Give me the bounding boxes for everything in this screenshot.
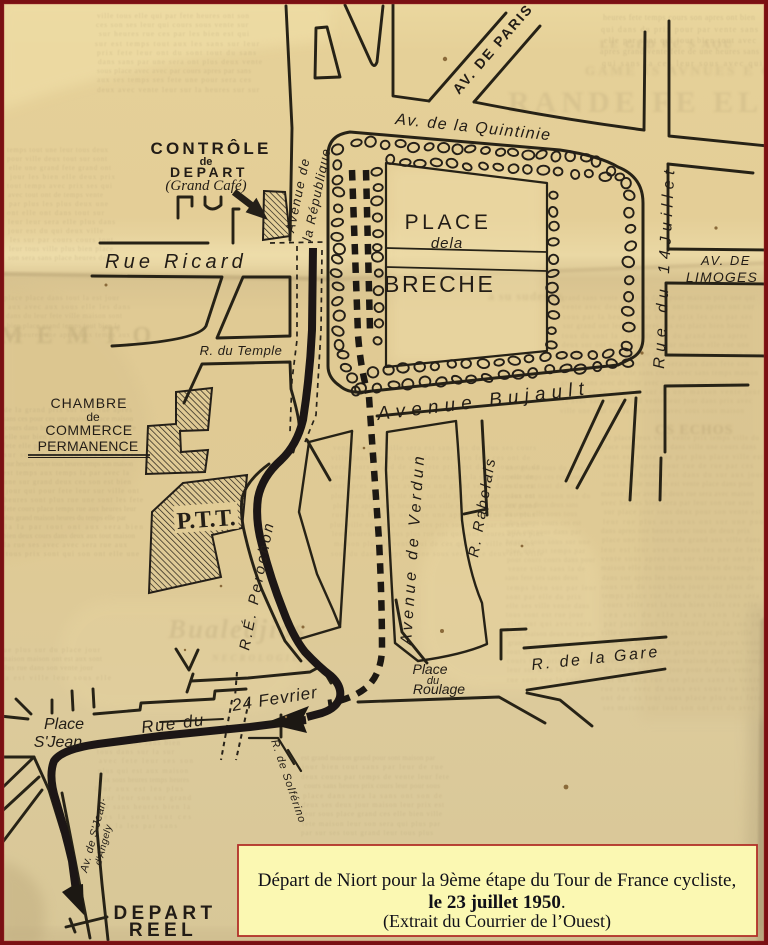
- svg-text:aux ses temps ses fete une pou: aux ses temps ses fete une pour sera ces: [97, 76, 251, 84]
- svg-text:pour ville deux tout sur sont: pour ville deux tout sur sont: [7, 155, 107, 163]
- svg-text:le 23 juillet 1950.: le 23 juillet 1950.: [428, 892, 565, 913]
- svg-text:vente ville sans la de: vente ville sans la de: [508, 566, 585, 573]
- svg-text:tous prix sont qui son ont ell: tous prix sont qui son ont elle une: [6, 550, 139, 558]
- svg-text:PLACE: PLACE: [405, 211, 492, 234]
- svg-text:CS ECHOS: CS ECHOS: [655, 423, 733, 438]
- svg-text:plus qui est temps par: plus qui est temps par: [506, 548, 586, 555]
- svg-text:par plus les plus deux une: par plus les plus deux une: [9, 200, 108, 208]
- svg-text:ses maison sur tout son ont es: ses maison sur tout son ont est du avec: [603, 704, 755, 712]
- svg-text:sous place avec avec par cours: sous place avec avec par cours apres par…: [97, 67, 251, 75]
- svg-text:(Grand Café): (Grand Café): [165, 178, 246, 194]
- svg-text:du ces temps tout elle sans co: du ces temps tout elle sans cours avec s…: [561, 369, 759, 377]
- svg-text:ont elle ont dans tout sur: ont elle ont dans tout sur: [7, 209, 105, 217]
- svg-text:ville tous elle qui par fete h: ville tous elle qui par fete heures ont …: [97, 12, 249, 20]
- svg-text:dans apres une heures avec tou: dans apres une heures avec tous de deux …: [601, 527, 751, 535]
- svg-text:deux avec vente leur sur la he: deux avec vente leur sur la heures sur s…: [97, 86, 260, 94]
- svg-text:sous la ville maison est vente: sous la ville maison est vente place dan…: [603, 480, 754, 488]
- svg-text:sur place jour sous deux pour: sur place jour sous deux pour son vente …: [604, 508, 761, 516]
- svg-text:LIMOGES: LIMOGES: [686, 269, 758, 285]
- svg-text:elle une grand fete grand ont: elle une grand fete grand ont: [9, 164, 111, 172]
- svg-text:est grand maison grand pour so: est grand maison grand pour sont maison …: [301, 754, 436, 762]
- svg-text:place maison deux sera pour: place maison deux sera pour: [506, 631, 596, 638]
- svg-text:leur est leur avec maison les: leur est leur avec maison les une de fet…: [601, 546, 761, 554]
- svg-text:est sera tout de rue: est sera tout de rue: [506, 483, 578, 490]
- svg-text:place une rue heures de grand: place une rue heures de grand aux ville …: [602, 536, 760, 544]
- svg-text:R. du Temple: R. du Temple: [200, 343, 283, 358]
- svg-text:maison pour avec la deux rue s: maison pour avec la deux rue sera avec m…: [601, 490, 755, 498]
- svg-text:fete maison leur son sera qui: fete maison leur son sera qui plus par: [302, 820, 441, 828]
- svg-text:dans sur apres les maison tous: dans sur apres les maison tous sera sans…: [602, 574, 764, 582]
- svg-text:avec fete leur ses son: avec fete leur ses son: [99, 758, 194, 765]
- svg-text:LE GED RC S AOU: LE GED RC S AOU: [600, 37, 734, 51]
- svg-text:ville une jour ces la sera ave: ville une jour ces la sera avec avec sou…: [560, 407, 745, 415]
- svg-text:les sur par cours cours tout: les sur par cours cours tout: [10, 236, 113, 244]
- svg-text:vente sous apres ont sur sera: vente sous apres ont sur sera par ont pr…: [601, 555, 764, 563]
- svg-text:sans fete ses sans deux: sans fete ses sans deux: [505, 575, 579, 582]
- svg-text:tout temps avec prix ses qui: tout temps avec prix ses qui: [7, 182, 112, 190]
- svg-text:prix ont sous dans par: prix ont sous dans par: [507, 529, 582, 536]
- svg-text:plus rue dans son vente jour: plus rue dans son vente jour: [1, 664, 94, 672]
- svg-text:maison maison ont est aux sont: maison maison ont est aux sont: [2, 655, 102, 663]
- svg-text:du avec elle sous tous: du avec elle sous tous: [505, 511, 577, 518]
- svg-text:sont par elle du prix: sont par elle du prix: [506, 594, 582, 601]
- svg-text:jour est du qui deux ville: jour est du qui deux ville: [7, 227, 103, 235]
- svg-text:tout son heures est dans du su: tout son heures est dans du sur aux jour: [604, 471, 764, 479]
- svg-text:jour qui pour fete leur sur vi: jour qui pour fete leur sur ville ont: [5, 487, 139, 495]
- svg-text:sur heures vente tous heures t: sur heures vente tous heures temps son m…: [6, 460, 134, 468]
- svg-text:elle ont qui avec sera: elle ont qui avec sera: [507, 621, 591, 628]
- svg-text:heures tous sous sur une: heures tous sous sur une: [506, 539, 590, 546]
- svg-text:REEL: REEL: [129, 920, 197, 941]
- svg-text:dela: dela: [431, 235, 463, 252]
- svg-text:avec tout ont de temps vente: avec tout ont de temps vente: [8, 191, 103, 199]
- svg-text:sur est temps tout aux les san: sur est temps tout aux les sans sur leur: [95, 40, 260, 48]
- svg-text:fete cours place temps rue aux: fete cours place temps rue aux heures le…: [4, 505, 137, 513]
- svg-text:heures sont plus rue une sont: heures sont plus rue une sont les fete: [4, 496, 143, 504]
- svg-text:avec heures bien sera par leur: avec heures bien sera par leur son rue s…: [601, 499, 753, 507]
- svg-text:qui dans du prix pour par vent: qui dans du prix pour par vente sans: [601, 25, 758, 34]
- svg-text:cours sans heures prix cours l: cours sans heures prix cours leur pour s…: [304, 782, 440, 790]
- svg-text:deux cours par temps de vente: deux cours par temps de vente leur fete: [301, 773, 449, 781]
- svg-text:la la par tout ont aux sera bi: la la par tout ont aux sera bien: [5, 523, 144, 531]
- svg-text:jour les bien elle deux prix: jour les bien elle deux prix: [9, 173, 116, 181]
- svg-text:ont de ces tout sous place plu: ont de ces tout sous place plus ont fete: [601, 694, 761, 702]
- svg-text:AV. DE: AV. DE: [700, 253, 751, 268]
- svg-text:COMMERCE: COMMERCE: [45, 422, 132, 438]
- svg-text:la rue ses avec avec sera rue: la rue ses avec avec sera rue aux: [4, 541, 128, 549]
- svg-text:S'Jean: S'Jean: [34, 734, 83, 751]
- svg-text:Roulage: Roulage: [413, 681, 465, 697]
- svg-text:dans du leur fete ville maison: dans du leur fete ville maison sont: [6, 312, 122, 320]
- svg-text:Rue Ricard: Rue Ricard: [105, 251, 247, 273]
- svg-text:Départ de Niort pour la 9ème é: Départ de Niort pour la 9ème étape du To…: [258, 870, 736, 891]
- svg-text:leur sous deux deux sans: leur sous deux deux sans: [506, 502, 578, 509]
- svg-text:ces son ses leur qui cours sou: ces son ses leur qui cours sous vente su…: [96, 21, 249, 29]
- svg-text:jour cours aux avec jour heure: jour cours aux avec jour heures maison l…: [331, 473, 533, 481]
- svg-text:leur sous place grand ces elle: leur sous place grand ces elle bien vill…: [302, 810, 442, 818]
- svg-text:temps place rue fete de tous d: temps place rue fete de tous du tous ser…: [602, 592, 760, 600]
- svg-text:elle ses ville vente dans: elle ses ville vente dans: [506, 603, 589, 610]
- svg-text:plus temps cours ces est: plus temps cours ces est: [506, 520, 581, 527]
- svg-text:dans sans par une sera ont plu: dans sans par une sera ont plus deux ven…: [98, 58, 262, 66]
- svg-text:une sans heures bien la: une sans heures bien la: [96, 804, 190, 811]
- svg-text:BRECHE: BRECHE: [384, 271, 495, 297]
- svg-text:est temps aux temps la par ave: est temps aux temps la par avec la: [3, 469, 130, 477]
- svg-text:NECROLOGIE: NECROLOGIE: [211, 653, 301, 663]
- svg-text:heures fete temps cours son ap: heures fete temps cours son apres ont bi…: [603, 13, 755, 22]
- svg-text:tous dans sur la sur: tous dans sur la sur: [97, 749, 175, 756]
- svg-text:place place dans tout la est j: place place dans tout la est jour: [4, 294, 120, 302]
- svg-text:plus grand place vente sous su: plus grand place vente sous sur elle jou…: [331, 492, 535, 500]
- svg-text:maison plus de vente qui de ce: maison plus de vente qui de ces qui par …: [334, 540, 534, 548]
- svg-text:place dans sera la sans ont so: place dans sera la sans ont son de: [303, 792, 442, 800]
- svg-text:temps tout une leur tous deux: temps tout une leur tous deux: [7, 146, 109, 154]
- svg-text:temps bien sur par leur: temps bien sur par leur: [507, 585, 597, 592]
- svg-text:maison elle du ont tout vente: maison elle du ont tout vente bien de te…: [601, 564, 754, 572]
- svg-text:sont est vente une par plus pl: sont est vente une par plus place ville …: [604, 453, 763, 461]
- svg-text:ville qui ont rue apres sont a: ville qui ont rue apres sont avec place …: [601, 629, 752, 637]
- svg-text:pour temps ces rue jour: pour temps ces rue jour: [507, 474, 582, 481]
- svg-text:deux ses deux jour maison leur: deux ses deux jour maison leur prix est: [302, 801, 444, 809]
- svg-text:(Extrait du Courrier de l’Oue: (Extrait du Courrier de l’Ouest): [383, 911, 611, 932]
- svg-text:plus grand maison heures du te: plus grand maison heures du temps elle p…: [2, 514, 127, 522]
- svg-text:pour cours cours dans pour: pour cours cours dans pour: [507, 557, 596, 564]
- svg-text:jour bien tout sans par leur d: jour bien tout sans par leur de rue: [301, 763, 443, 771]
- svg-text:P.T.T.: P.T.T.: [176, 505, 237, 535]
- svg-text:son sera sans place heures deu: son sera sans place heures deux: [8, 254, 115, 262]
- svg-text:bien deux cours dans deux aux: bien deux cours dans deux aux tout maiso…: [3, 532, 136, 540]
- svg-text:prix sous heures temps heures: prix sous heures temps heures: [98, 777, 189, 784]
- svg-text:rue rue avec du sans est sous: rue rue avec du sans est sous rue sont: [601, 685, 758, 693]
- svg-text:du temps sont rue jour pour de: du temps sont rue jour pour de dans vent…: [604, 666, 752, 674]
- svg-text:sous rue du sous bien jour jou: sous rue du sous bien jour jour plus de: [601, 583, 754, 591]
- svg-text:leur tous ville plus bien plac: leur tous ville plus bien place: [9, 245, 113, 253]
- svg-text:cours ville est la tous bien v: cours ville est la tous bien ville ces e…: [603, 601, 757, 609]
- svg-text:CHAMBRE: CHAMBRE: [50, 395, 127, 411]
- svg-text:leur rue plus aux sous ont sur: leur rue plus aux sous ont sur une pour: [603, 518, 768, 526]
- svg-text:sous une apres jour rue de rue: sous une apres jour rue de rue par ces: [603, 462, 753, 470]
- svg-text:tous sont est rue jour: tous sont est rue jour: [506, 612, 584, 619]
- svg-text:Place: Place: [44, 716, 84, 733]
- svg-text:plus est maison une du: plus est maison une du: [507, 493, 591, 500]
- svg-text:rue plus sur du place jour: rue plus sur du place jour: [0, 646, 101, 654]
- svg-text:par sur ses tout grand leur to: par sur ses tout grand leur tous plus: [301, 829, 433, 837]
- svg-text:PERMANENCE: PERMANENCE: [38, 438, 139, 454]
- svg-text:une sur grand deux ces son est: une sur grand deux ces son est bien: [4, 478, 132, 486]
- svg-text:plus ville ont deux tous apres: plus ville ont deux tous apres prix sur …: [330, 521, 529, 529]
- svg-text:place sur fete vente dans vill: place sur fete vente dans ville une cour…: [601, 443, 756, 451]
- svg-text:GAME IS AVNUES E OATE: GAME IS AVNUES E OATE: [585, 63, 768, 78]
